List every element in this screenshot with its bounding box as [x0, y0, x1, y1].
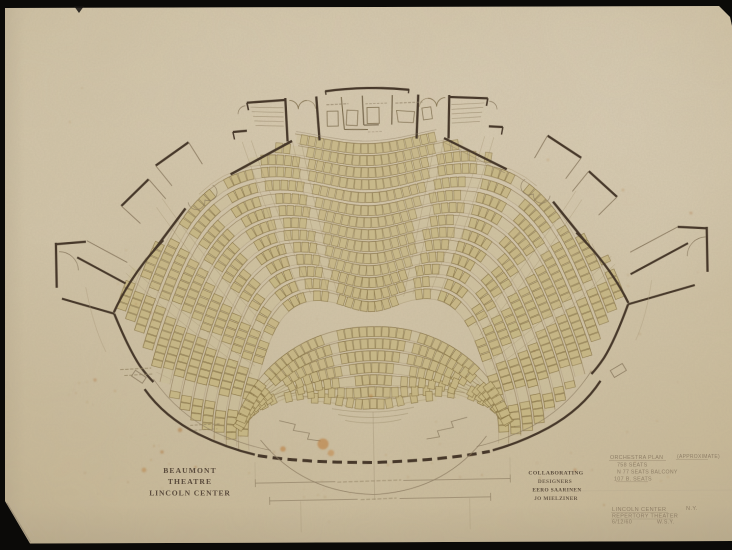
svg-text:EERO SAARINEN: EERO SAARINEN — [532, 488, 581, 494]
svg-text:JO MIELZINER: JO MIELZINER — [534, 496, 578, 502]
svg-text:ORCHESTRA PLAN: ORCHESTRA PLAN — [610, 455, 663, 461]
svg-text:N.Y.: N.Y. — [686, 506, 698, 512]
svg-text:758 SEATS: 758 SEATS — [617, 463, 648, 469]
svg-text:LINCOLN CENTER: LINCOLN CENTER — [149, 489, 231, 498]
svg-text:(APPROXIMATE): (APPROXIMATE) — [677, 454, 720, 460]
svg-text:6/12/60: 6/12/60 — [612, 520, 632, 526]
svg-text:W.S.Y.: W.S.Y. — [657, 520, 675, 526]
svg-text:DESIGNERS: DESIGNERS — [538, 479, 572, 485]
svg-text:COLLABORATING: COLLABORATING — [528, 471, 583, 477]
svg-text:BEAUMONT: BEAUMONT — [163, 466, 217, 475]
svg-text:LINCOLN CENTER: LINCOLN CENTER — [612, 507, 666, 513]
svg-text:N 77 SEATS BALCONY: N 77 SEATS BALCONY — [617, 470, 678, 476]
svg-text:THEATRE: THEATRE — [168, 477, 212, 486]
